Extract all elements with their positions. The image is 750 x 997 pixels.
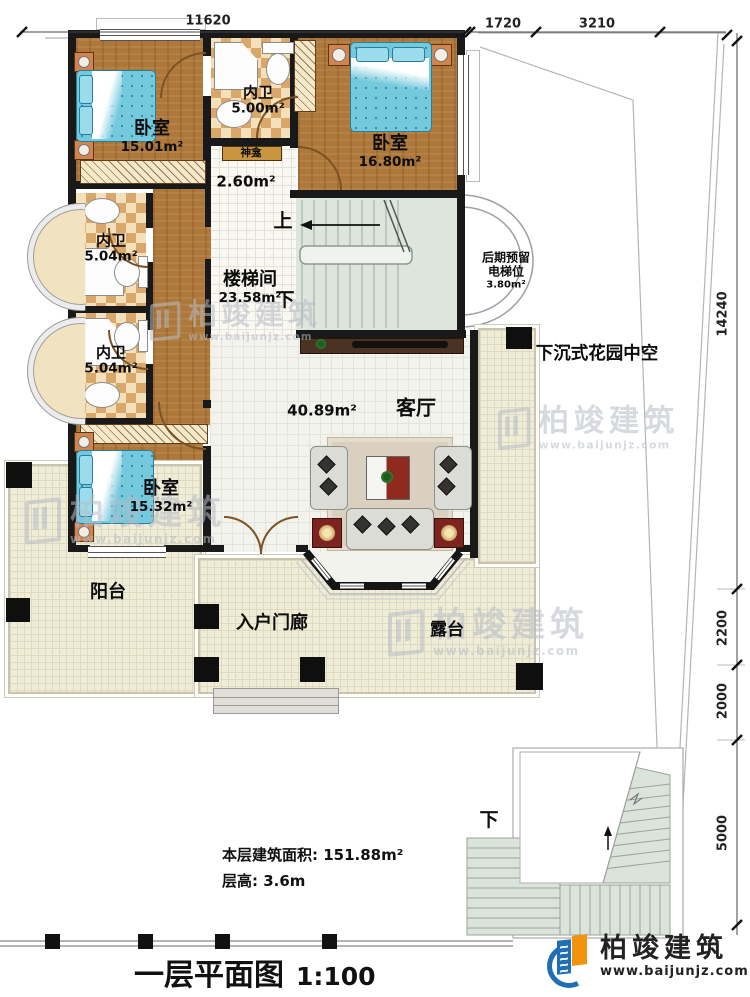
pillow [79, 455, 93, 485]
brand-name: 柏竣建筑 [600, 935, 728, 963]
elevator-area: 3.80m² [482, 279, 530, 291]
column [194, 604, 219, 629]
room-name: 卧室 [359, 134, 422, 155]
dim-right-4: 5000 [716, 815, 731, 851]
floor-terrace-strip [478, 328, 536, 564]
room-label-porch: 入户门廊 [236, 614, 308, 635]
plan-scale: 1:100 [296, 962, 376, 991]
room-label-bedroom-top-left: 卧室 15.01m² [121, 119, 184, 155]
room-label-living: 客厅 [396, 397, 436, 420]
window [100, 29, 200, 41]
window [457, 55, 469, 175]
room-area: 16.80m² [359, 155, 422, 171]
floor-plan-canvas: 卧室 15.01m² 内卫 5.00m² 神龛 2.60m² 卧室 16.80m… [0, 0, 750, 997]
floor-area-line: 本层建筑面积: 151.88m² [222, 843, 403, 869]
watermark-url: www.baijunjz.com [539, 438, 679, 451]
column [6, 462, 32, 488]
bed-sheet [92, 451, 122, 521]
column [516, 663, 543, 690]
watermark-brand: 柏竣建筑 [539, 406, 679, 437]
side-table [434, 518, 464, 548]
wall [146, 364, 153, 418]
wall [68, 545, 90, 552]
wall [205, 189, 211, 227]
wardrobe [80, 160, 206, 184]
elevator-line1: 后期预留 [482, 251, 530, 265]
column [194, 657, 219, 682]
window [88, 546, 166, 558]
room-area-living: 40.89m² [287, 402, 357, 419]
bed-sheet [92, 71, 122, 139]
tv [352, 341, 448, 348]
pillow [79, 487, 93, 517]
elevator-line2: 电梯位 [482, 265, 530, 279]
nightstand [74, 522, 94, 542]
room-label-bath-mid: 内卫 5.04m² [84, 233, 137, 266]
plant [381, 471, 393, 483]
room-label-bath-top: 内卫 5.00m² [231, 85, 284, 118]
sink [84, 382, 120, 408]
room-label-stairwell: 楼梯间 23.58m² [219, 270, 282, 306]
room-area: 5.00m² [231, 102, 284, 118]
pillow [79, 75, 93, 104]
room-name: 内卫 [231, 85, 284, 102]
wall [457, 190, 465, 338]
logo-building-blue [557, 939, 571, 974]
site-fence [0, 934, 513, 949]
floor-stats: 本层建筑面积: 151.88m² 层高: 3.6m [222, 843, 403, 894]
room-label-elevator-reserve: 后期预留 电梯位 3.80m² [482, 251, 530, 290]
exterior-stair [467, 748, 683, 938]
nightstand [328, 44, 350, 66]
toilet [266, 53, 290, 85]
room-label-bedroom-top-right: 卧室 16.80m² [359, 134, 422, 170]
room-label-garden: 下沉式花园中空 [536, 344, 659, 364]
room-area: 5.04m² [84, 250, 137, 266]
room-label-balcony: 阳台 [90, 583, 126, 604]
wall [205, 259, 211, 338]
floor-stairwell [296, 198, 457, 330]
room-area: 23.58m² [219, 291, 282, 307]
wall [211, 545, 224, 552]
brand-url: www.baijunjz.com [600, 964, 749, 979]
room-label-bath-low: 内卫 5.04m² [84, 345, 137, 378]
room-area-shrine: 2.60m² [216, 173, 275, 190]
dim-top-right-2: 3210 [579, 17, 615, 32]
dim-right-3: 2000 [716, 683, 731, 719]
plant [316, 339, 326, 349]
room-name: 卧室 [130, 479, 193, 500]
wall [290, 190, 465, 198]
side-table [312, 518, 342, 548]
nightstand [74, 52, 94, 72]
nightstand [74, 432, 94, 452]
pillow [79, 106, 93, 135]
room-area: 5.04m² [84, 362, 137, 378]
floor-corridor [153, 189, 211, 425]
room-name: 内卫 [84, 345, 137, 362]
wall [203, 446, 211, 552]
room-area: 15.01m² [121, 140, 184, 156]
exterior-stair-down-label: 下 [479, 810, 498, 832]
dim-right-1: 14240 [716, 291, 731, 336]
wall [296, 330, 466, 338]
room-name: 卧室 [121, 119, 184, 140]
wall [146, 193, 153, 228]
plan-title-block: 一层平面图 1:100 [126, 950, 384, 997]
wall [164, 545, 211, 552]
entry-steps [213, 688, 339, 714]
column [6, 598, 30, 622]
nightstand [74, 140, 94, 160]
dim-top: 11620 [185, 14, 230, 29]
sink [84, 198, 120, 224]
room-area: 15.32m² [130, 500, 193, 516]
bed-sheet [351, 58, 429, 90]
wall [470, 330, 478, 558]
room-label-shrine: 神龛 [241, 146, 262, 158]
dim-top-right-1: 1720 [485, 17, 521, 32]
stair-down-label: 下 [275, 290, 294, 312]
brand-logo: 柏竣建筑 www.baijunjz.com [547, 932, 749, 982]
pillow [392, 47, 425, 62]
floor-height-line: 层高: 3.6m [222, 869, 403, 895]
room-label-bedroom-bottom-left: 卧室 15.32m² [130, 479, 193, 515]
column [300, 657, 325, 682]
pillow [356, 47, 389, 62]
armchair [434, 446, 472, 510]
room-label-terrace: 露台 [430, 621, 464, 641]
logo-building-orange [572, 934, 587, 966]
plan-title: 一层平面图 [134, 950, 284, 994]
room-name: 楼梯间 [219, 270, 282, 291]
dim-right-2: 2200 [716, 610, 731, 646]
wall [211, 138, 298, 146]
column [506, 327, 532, 349]
brand-logo-icon [547, 932, 593, 982]
room-name: 内卫 [84, 233, 137, 250]
stair-up-label: 上 [273, 211, 292, 233]
nightstand [430, 44, 452, 66]
